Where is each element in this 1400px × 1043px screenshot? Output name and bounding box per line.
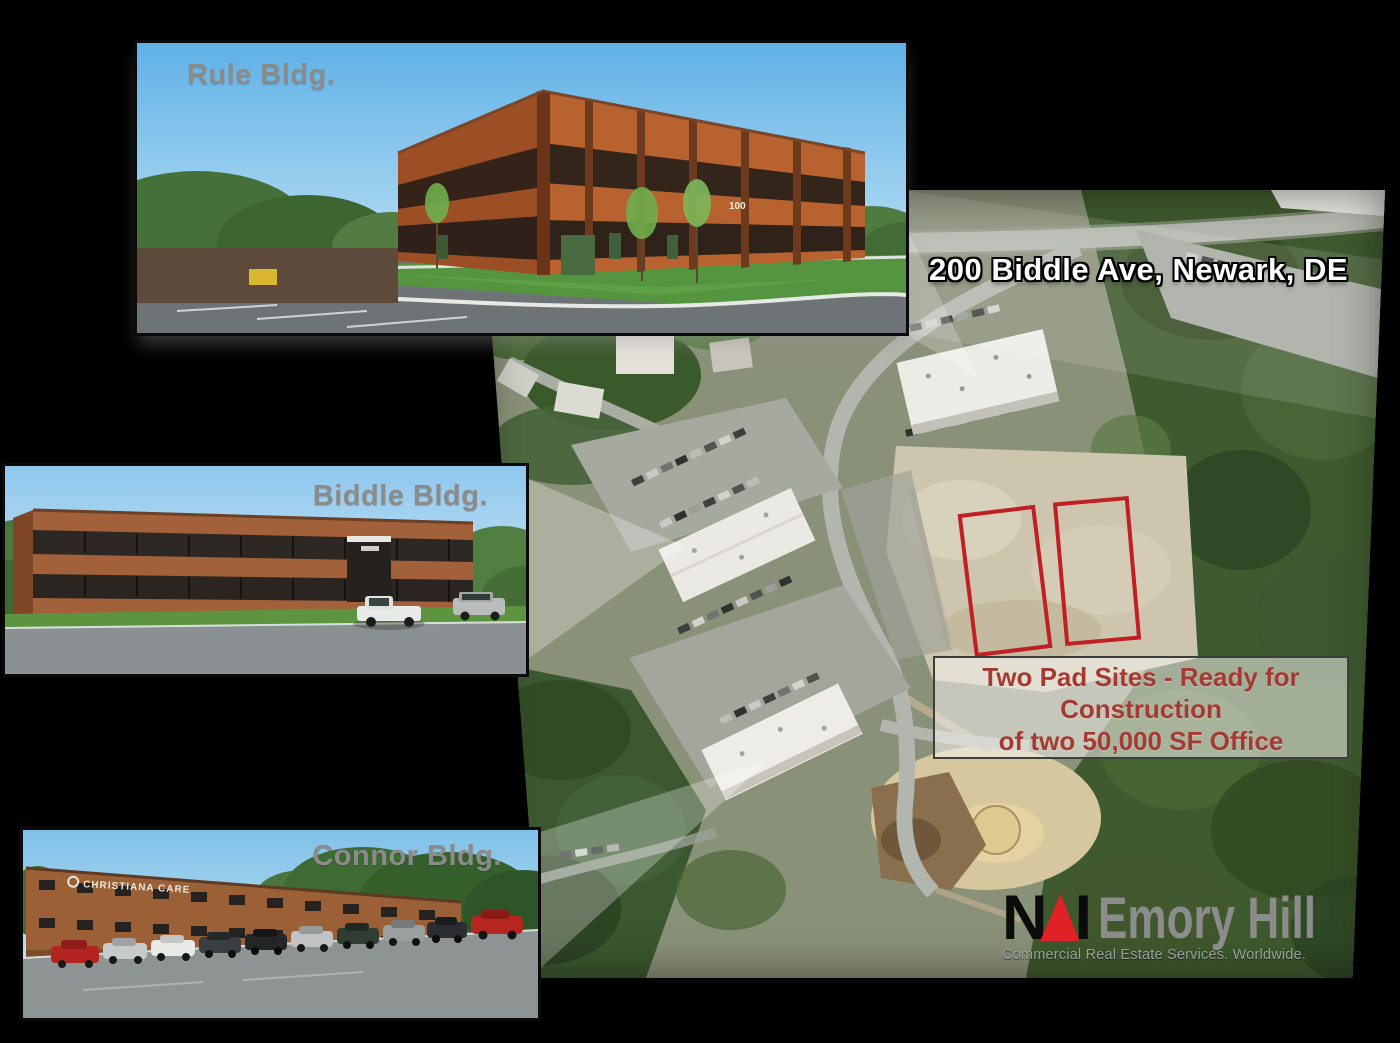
logo-company-name: Emory Hill: [1098, 896, 1316, 942]
building-front: [13, 510, 473, 616]
pad-note-line3: of two 50,000 SF Office: [935, 725, 1347, 757]
nai-emory-hill-logo: N A I Emory Hill Commercial Real Estate …: [1002, 894, 1385, 963]
building-number: 100: [729, 201, 746, 212]
rule-building-photo: 100 Rule Bldg.: [134, 40, 909, 336]
corner-pillar: [537, 91, 550, 275]
logo-letter-n: N: [1002, 894, 1046, 942]
rule-building-label: Rule Bldg.: [187, 59, 335, 92]
logo-wordmark: N A I Emory Hill: [1002, 894, 1385, 942]
green-utility-box: [561, 235, 595, 275]
connor-building-photo: CHRISTIANA CARE Connor Bldg.: [20, 827, 541, 1021]
biddle-building-photo: Biddle Bldg.: [2, 463, 529, 677]
left-wing: [137, 248, 398, 303]
pad-sites-note: Two Pad Sites - Ready for Construction o…: [933, 656, 1349, 759]
address-overlay: 200 Biddle Ave, Newark, DE: [929, 252, 1348, 288]
lawn-and-drive: [5, 606, 526, 674]
biddle-building-label: Biddle Bldg.: [313, 480, 488, 513]
flyer-canvas: 200 Biddle Ave, Newark, DE Two Pad Sites…: [0, 0, 1400, 1043]
pad-note-line1: Two Pad Sites - Ready for: [935, 661, 1347, 693]
pad-note-line2: Construction: [935, 693, 1347, 725]
connor-building-label: Connor Bldg.: [312, 840, 502, 873]
yellow-sign: [249, 269, 277, 285]
